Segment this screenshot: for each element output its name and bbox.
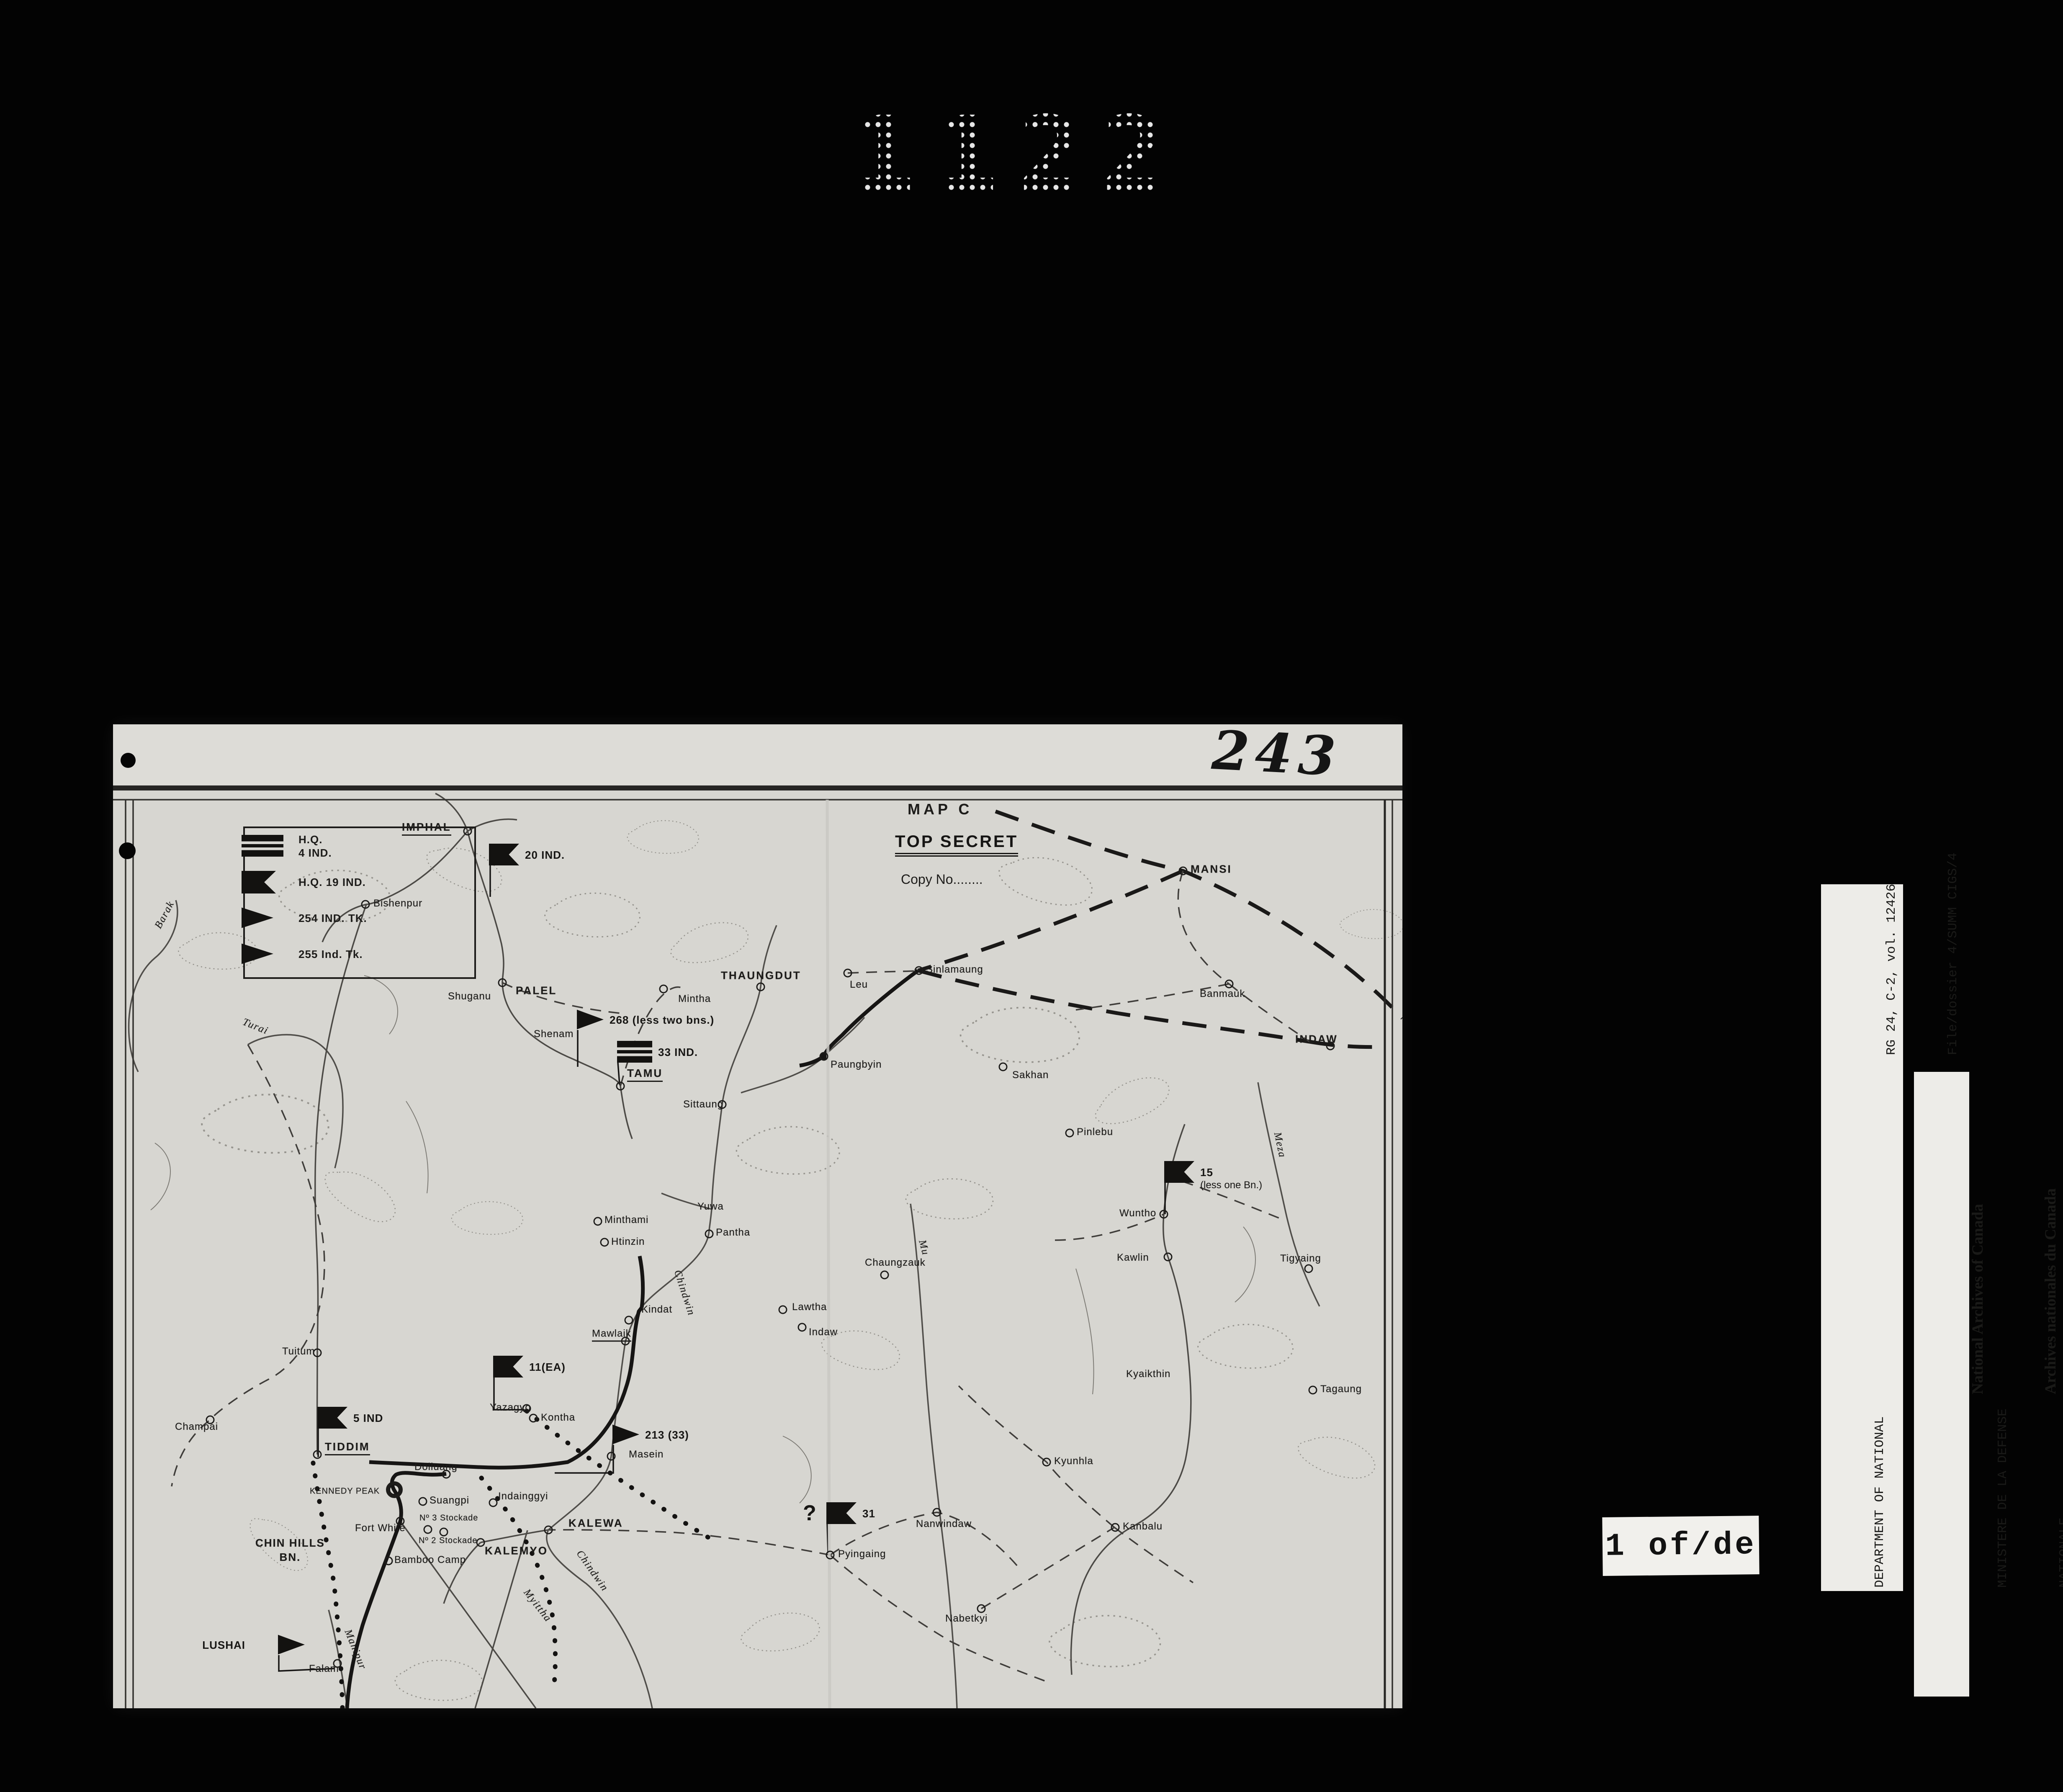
archives-canada-text: National Archives of Canada Archives nat… (1917, 1188, 2063, 1394)
place-label: Htinzin (611, 1236, 645, 1248)
place-label: Nº 2 Stockade (419, 1536, 477, 1546)
place-label: Kontha (541, 1412, 575, 1424)
town-marker (498, 978, 507, 987)
unit-label: 268 (less two bns.) (610, 1014, 714, 1027)
archives-canada-strip: National Archives of Canada Archives nat… (1914, 1072, 1969, 1697)
town-marker (999, 1063, 1008, 1071)
town-marker (616, 1082, 625, 1091)
town-marker (489, 1498, 498, 1507)
place-label: CHIN HILLS BN. (255, 1536, 325, 1564)
place-label: Kyunhla (1054, 1455, 1093, 1467)
place-label: Myittha (521, 1587, 554, 1625)
town-marker (1111, 1523, 1120, 1532)
place-label: Chindwin (671, 1269, 697, 1317)
town-marker (544, 1526, 553, 1535)
archive-department-line: MINISTERE DE LA DEFENSE (1993, 1408, 2013, 1588)
page-count-label: 1 of/de (1602, 1516, 1759, 1576)
town-marker (1225, 980, 1234, 989)
hole-punch (119, 842, 136, 859)
film-frame-number: 1122 (852, 98, 1184, 211)
place-label: Masein (629, 1449, 664, 1460)
place-label: Kyaikthin (1126, 1368, 1170, 1380)
archive-department-line: NATIONALE (2054, 1408, 2063, 1588)
map-sheet: 243 MAP C TOP SECRET Copy No........ H.Q… (113, 724, 1402, 1708)
place-label: Chaungzauk (865, 1257, 926, 1269)
solid-flag-icon (493, 1356, 523, 1377)
place-label: Pantha (716, 1227, 750, 1238)
place-label: Mintha (678, 993, 711, 1005)
town-marker (756, 983, 765, 991)
place-label: Sakhan (1012, 1069, 1049, 1081)
archive-reference-line: RG 24, C-2, vol. 12426 (1881, 852, 1902, 1055)
place-label: Indaw (809, 1326, 838, 1338)
solid-flag-icon (317, 1407, 347, 1429)
archive-reference-card: RG 24, C-2, vol. 12426 File/dossier 4/SU… (1821, 884, 1903, 1591)
pennant-flag-icon (577, 1009, 604, 1030)
place-label: Chindwin (574, 1548, 611, 1594)
place-label: Nanwindaw (916, 1518, 972, 1530)
map-labels-layer: IMPHALBishenpurPALELShuganuShenamTHAUNGD… (113, 724, 1402, 1708)
place-label: Kindat (641, 1304, 672, 1316)
place-label: Pinlebu (1077, 1126, 1113, 1138)
town-marker (625, 1316, 633, 1325)
town-marker (705, 1230, 714, 1238)
town-marker (361, 900, 370, 909)
place-label: KALEWA (568, 1517, 623, 1530)
solid-flag-icon (489, 844, 519, 865)
unit-label: LUSHAI (202, 1639, 245, 1652)
town-marker (600, 1238, 609, 1247)
solid-flag-icon (826, 1502, 857, 1524)
town-marker (977, 1604, 986, 1613)
place-label: KENNEDY PEAK (310, 1487, 380, 1496)
place-label: Nº 3 Stockade (419, 1514, 478, 1523)
place-label: MANSI (1191, 863, 1232, 876)
place-label: Indainggyi (498, 1491, 548, 1502)
archive-reference-line: File/dossier 4/SUMM CIGS/4 (1943, 852, 1963, 1055)
town-marker (1304, 1264, 1313, 1273)
place-label: Kanbalu (1123, 1521, 1163, 1532)
town-marker (529, 1414, 538, 1423)
place-label: Wuntho (1119, 1208, 1156, 1219)
town-marker (1065, 1129, 1074, 1138)
place-label: Tuitum (282, 1346, 315, 1357)
town-marker (419, 1497, 427, 1506)
place-label: Champai (175, 1421, 218, 1433)
place-label: Shenam (534, 1028, 574, 1040)
place-label: Barak (153, 899, 177, 931)
place-label: KALEMYO (485, 1545, 548, 1558)
unit-label: 31 (862, 1507, 875, 1520)
place-label: Shuganu (448, 991, 491, 1002)
place-label: Minthami (604, 1214, 648, 1226)
place-label: Dolluang (414, 1461, 458, 1473)
place-label: Pyingaing (838, 1548, 886, 1560)
place-label: TAMU (627, 1067, 663, 1082)
town-marker (933, 1508, 941, 1517)
place-label: Fort White (355, 1522, 406, 1534)
place-label: Paungbyin (831, 1059, 882, 1071)
place-label: Mu (916, 1238, 931, 1256)
place-label: Bishenpur (373, 898, 422, 909)
place-label: Meza (1271, 1131, 1288, 1159)
place-label: Falam (309, 1663, 339, 1675)
place-label: Bamboo Camp (394, 1554, 466, 1566)
town-marker (463, 827, 472, 836)
town-marker (476, 1538, 485, 1547)
place-label: Suangpi (430, 1495, 469, 1506)
town-marker (384, 1557, 393, 1565)
unit-label: 213 (33) (645, 1429, 689, 1442)
unit-label: 5 IND (353, 1412, 383, 1425)
unit-label: 11(EA) (529, 1361, 566, 1374)
archives-canada-line: Archives nationales du Canada (2039, 1188, 2063, 1394)
pennant-flag-icon (278, 1634, 305, 1655)
town-marker (1160, 1210, 1168, 1219)
place-label: Sittaung (683, 1099, 723, 1110)
place-label: Turai (241, 1016, 270, 1037)
town-marker (594, 1217, 602, 1226)
town-marker (826, 1551, 835, 1560)
town-marker (820, 1052, 828, 1061)
place-label: Leu (850, 979, 868, 991)
unit-label: 33 IND. (658, 1046, 698, 1059)
place-label: IMPHAL (402, 821, 451, 836)
town-marker (1042, 1458, 1051, 1467)
town-marker (386, 1481, 403, 1498)
bar-flag-icon (617, 1041, 652, 1063)
unit-label: 20 IND. (525, 849, 565, 862)
place-label: Lawtha (792, 1301, 827, 1313)
unit-sublabel: (less one Bn.) (1200, 1179, 1262, 1191)
town-marker (844, 969, 852, 978)
place-label: Mawlaik (592, 1328, 631, 1342)
pennant-flag-icon (612, 1424, 639, 1445)
town-marker (798, 1323, 807, 1332)
town-marker (313, 1450, 322, 1459)
microfilm-scan: 1122 (0, 0, 2063, 1792)
place-label: Tigyaing (1280, 1253, 1321, 1264)
town-marker (880, 1271, 889, 1280)
place-label: Kawlin (1117, 1252, 1149, 1264)
town-marker (1179, 867, 1188, 875)
town-marker (440, 1528, 448, 1537)
unit-label: 15 (1200, 1166, 1213, 1179)
place-label: Manipur (342, 1628, 369, 1672)
solid-flag-icon (1164, 1161, 1194, 1183)
place-label: THAUNGDUT (721, 969, 801, 982)
town-marker (1164, 1253, 1173, 1262)
town-marker (424, 1525, 432, 1534)
place-label: Nabetkyi (945, 1613, 988, 1625)
place-label: PALEL (516, 984, 557, 997)
place-label: Tagaung (1320, 1383, 1362, 1395)
town-marker (915, 966, 923, 975)
place-label: Banmauk (1200, 988, 1245, 1000)
town-marker (1309, 1386, 1317, 1395)
archives-canada-line: National Archives of Canada (1966, 1188, 1990, 1394)
place-label: TIDDIM (325, 1440, 370, 1455)
town-marker (607, 1452, 616, 1461)
place-label: INDAW (1295, 1033, 1338, 1046)
hole-punch (121, 753, 136, 768)
place-label: Yuwa (697, 1201, 724, 1213)
archive-department-line: DEPARTMENT OF NATIONAL (1870, 1408, 1890, 1588)
archive-reference-text: RG 24, C-2, vol. 12426 File/dossier 4/SU… (1840, 852, 2004, 1055)
town-marker (659, 985, 668, 994)
unit-query-mark: ? (803, 1501, 816, 1526)
town-marker (779, 1305, 787, 1314)
place-label: Sinlamaung (926, 964, 983, 976)
place-label: Yazagyo (490, 1402, 531, 1414)
